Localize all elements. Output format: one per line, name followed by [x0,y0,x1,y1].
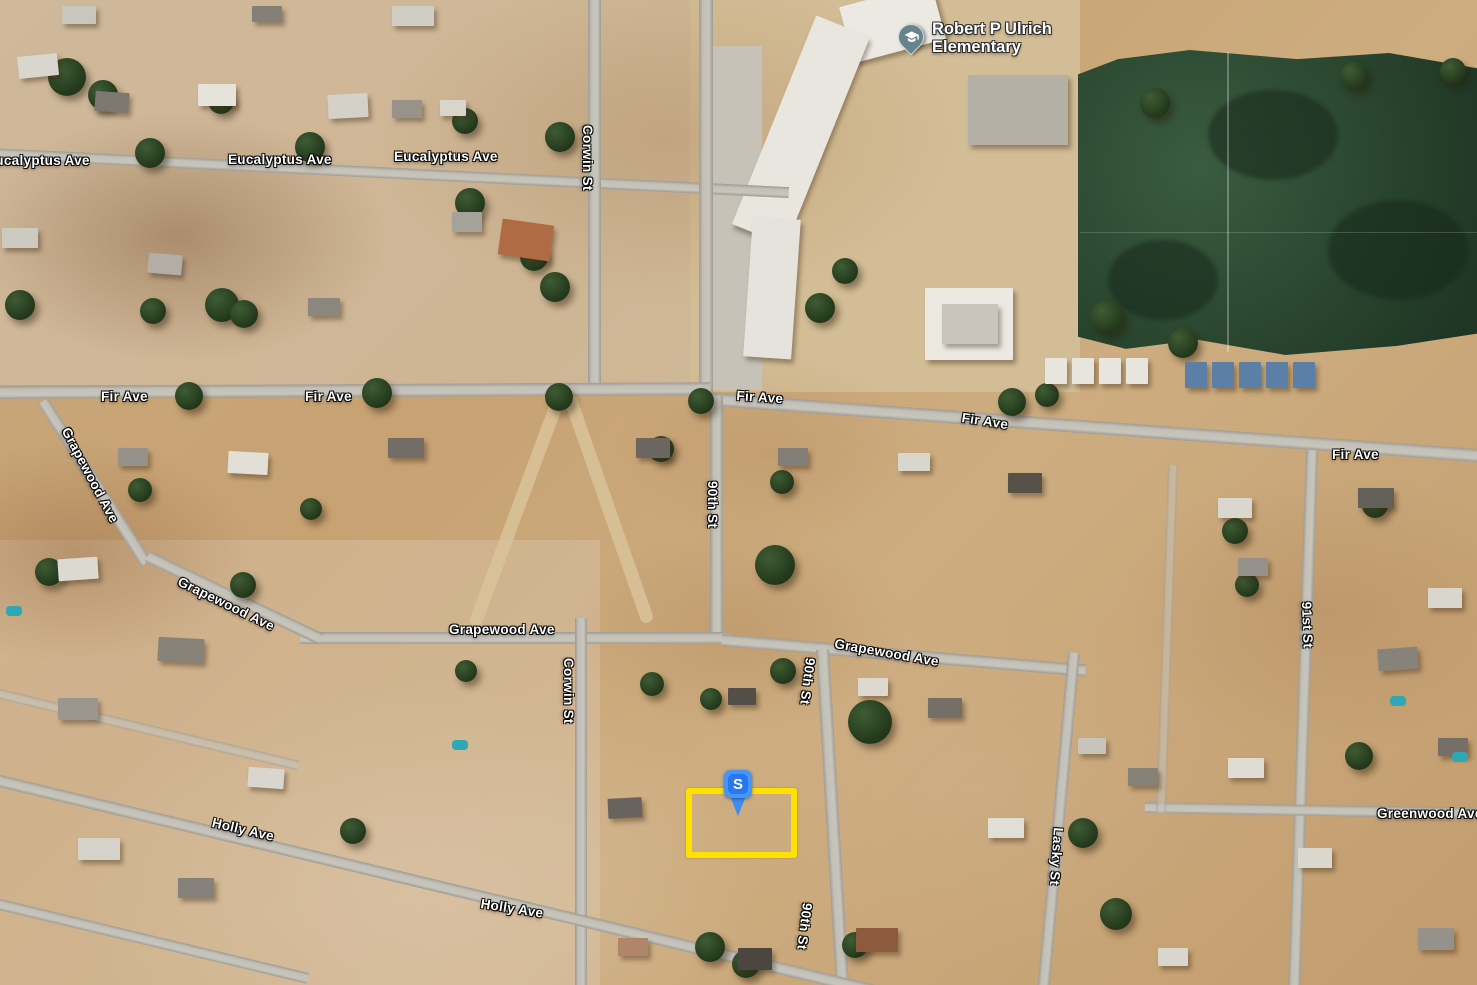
marker-letter: S [728,774,748,794]
building [1185,362,1207,388]
building [898,453,930,471]
road [816,649,849,985]
tree [135,138,165,168]
tree [455,660,477,682]
building [1266,362,1288,388]
building [1418,928,1454,950]
pool [1452,752,1468,762]
street-label-eucalyptus-ave: Eucalyptus Ave [228,152,332,167]
building [58,698,98,720]
building [1072,358,1094,384]
building [618,938,648,956]
building [1377,647,1418,672]
street-label-fir-ave: Fir Ave [101,389,148,404]
building [1218,498,1252,518]
building [392,100,422,118]
school-name-line2: Elementary [932,38,1052,56]
tree [1035,383,1059,407]
tree [140,298,166,324]
building [308,298,340,316]
building [1126,358,1148,384]
school-poi[interactable]: Robert P Ulrich Elementary [898,20,1052,57]
tree [832,258,858,284]
tree [805,293,835,323]
street-label-greenwood-ave: Greenwood Ave [1377,806,1477,821]
tree [230,572,256,598]
tree [1090,300,1124,334]
tree [1168,328,1198,358]
tree [362,378,392,408]
street-label-90th-st: 90th St [705,481,720,528]
street-label-fir-ave: Fir Ave [736,388,784,406]
tree [1068,818,1098,848]
marker-tail [730,796,746,816]
building [1078,738,1106,754]
tree [1235,573,1259,597]
school-pin-icon[interactable] [893,19,930,56]
building [1228,758,1264,778]
tree [998,388,1026,416]
tree [230,300,258,328]
building [1158,948,1188,966]
school-name: Robert P Ulrich Elementary [932,20,1052,57]
tree [700,688,722,710]
building [327,93,368,119]
school-building [743,216,801,359]
building [157,637,204,663]
building [118,448,148,466]
tree [688,388,714,414]
tree [1340,62,1368,90]
tree [540,272,570,302]
building [928,698,962,718]
road [0,896,309,984]
building [452,212,482,232]
street-label-grapewood-ave: Grapewood Ave [59,425,122,525]
road [0,686,299,770]
building [388,438,424,458]
building [1239,362,1261,388]
dirt-path [563,394,655,625]
parcel-line [1227,52,1229,352]
school-building [942,304,998,344]
school-field [1078,50,1477,355]
building [1128,768,1158,786]
road [588,0,601,392]
tree [770,470,794,494]
road [1037,652,1080,985]
building [1099,358,1121,384]
building [17,53,59,79]
pool [1390,696,1406,706]
street-label-91st-st: 91st St [1299,601,1316,648]
street-label-fir-ave: Fir Ave [305,389,352,404]
property-marker[interactable]: S [724,770,752,820]
road [699,0,713,394]
building [440,100,466,116]
building [252,6,282,22]
tree [1100,898,1132,930]
street-label-fir-ave: Fir Ave [1332,447,1379,462]
building [778,448,808,466]
building [856,928,898,952]
street-label-grapewood-ave: Grapewood Ave [833,636,940,669]
building [1238,558,1268,576]
street-label-corwin-st: Corwin St [580,125,595,191]
building [178,878,214,898]
street-label-90th-st: 90th St [794,902,815,951]
building [198,84,236,106]
building [147,253,183,276]
building [392,6,434,26]
school-building [732,15,870,245]
building [94,91,129,113]
field-shadow [1108,240,1218,320]
street-label-lasky-st: Lasky St [1047,827,1066,886]
road [575,618,587,985]
tree [340,818,366,844]
tree [770,658,796,684]
tree [1345,742,1373,770]
building [227,451,268,475]
parcel-line [1080,232,1477,233]
satellite-map[interactable]: Eucalyptus Ave Eucalyptus Ave Eucalyptus… [0,0,1477,985]
building [1293,362,1315,388]
tree [545,383,573,411]
tree [848,700,892,744]
school-name-line1: Robert P Ulrich [932,20,1052,38]
building [1008,473,1042,493]
building [2,228,38,248]
street-label-90th-st: 90th St [797,657,818,706]
building [738,948,772,970]
tree [695,932,725,962]
street-label-eucalyptus-ave: Eucalyptus Ave [0,153,90,168]
tree [1140,88,1170,118]
school-court [968,75,1068,145]
building [57,557,98,582]
street-label-corwin-st: Corwin St [561,658,576,724]
building [78,838,120,860]
building [1358,488,1394,508]
building [858,678,888,696]
field-shadow [1328,200,1468,300]
graduation-cap-icon [903,29,920,46]
dirt-path [468,398,564,627]
tree [175,382,203,410]
building [1298,848,1332,868]
tree [755,545,795,585]
street-label-eucalyptus-ave: Eucalyptus Ave [394,149,498,164]
road [1156,465,1178,813]
tree [128,478,152,502]
building [247,767,284,789]
building [988,818,1024,838]
tree [1222,518,1248,544]
building [636,438,670,458]
building [498,219,555,262]
road [145,551,323,644]
building [1212,362,1234,388]
building [728,688,756,705]
tree [5,290,35,320]
building [62,6,96,24]
road [1288,450,1318,985]
building [1045,358,1067,384]
tree [545,122,575,152]
pool [452,740,468,750]
building [607,797,642,819]
ground-patch [0,540,600,985]
building [1428,588,1462,608]
pool [6,606,22,616]
tree [1440,58,1466,84]
tree [640,672,664,696]
street-label-grapewood-ave: Grapewood Ave [449,622,555,637]
tree [300,498,322,520]
